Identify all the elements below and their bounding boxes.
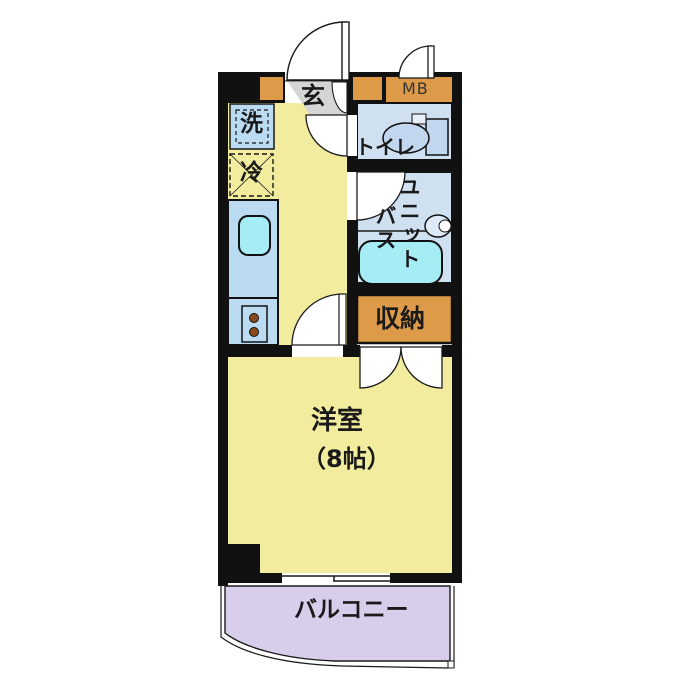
kitchen-sink xyxy=(239,216,270,255)
unit-bath-label-left-column: バス xyxy=(374,205,395,253)
entrance-label: 玄 xyxy=(301,84,325,108)
floor-plan-drawing xyxy=(0,0,700,700)
balcony-window xyxy=(282,576,390,581)
washbasin xyxy=(425,215,451,237)
storage-label: 収納 xyxy=(375,306,425,331)
meter-box-door xyxy=(399,46,434,78)
refrigerator-label: 冷 xyxy=(240,162,263,185)
meter-box-label: MB xyxy=(402,81,429,97)
kitchen-counter xyxy=(228,200,278,345)
washing-machine-label: 洗 xyxy=(240,113,263,136)
western-room-label: 洋室 xyxy=(311,408,363,434)
balcony-label: バルコニー xyxy=(294,599,409,622)
western-room-size-label: （8帖） xyxy=(302,447,391,471)
toilet-label: トイレ xyxy=(355,137,415,157)
unit-bath-label-right-column: ユニット xyxy=(398,176,419,272)
stove-burner xyxy=(250,328,259,337)
stove-burner xyxy=(250,314,259,323)
floor-plan-canvas: 玄 MB トイレ 洗 冷 ユニット バス 収納 洋室 （8帖） バルコニー xyxy=(0,0,700,700)
